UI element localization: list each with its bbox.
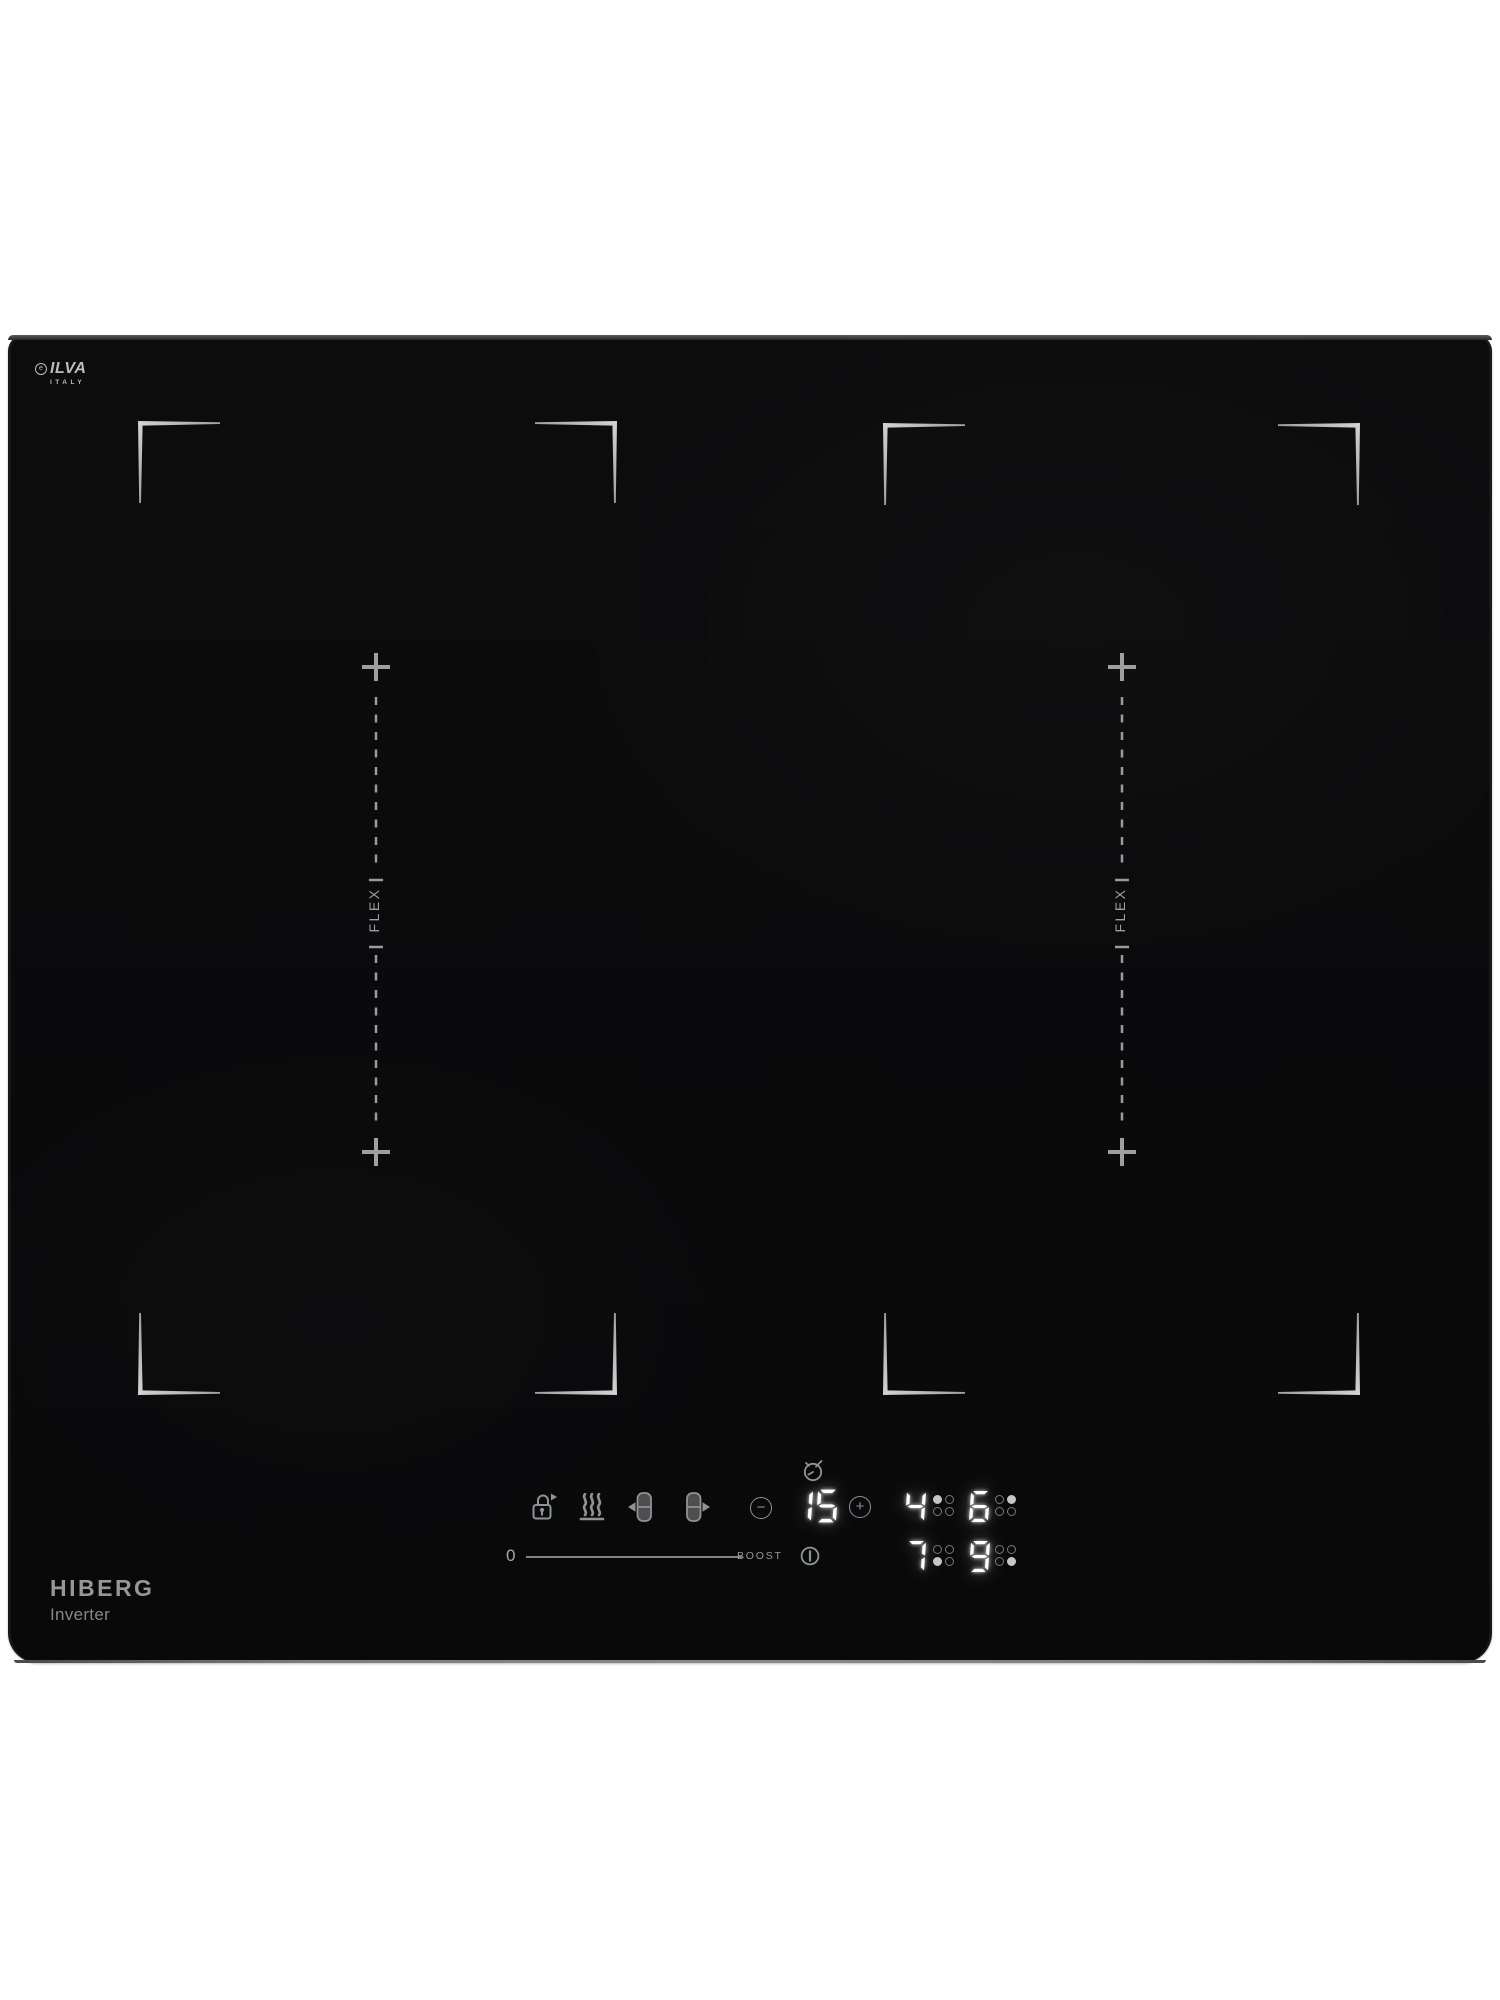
timer-minus-button[interactable]: − xyxy=(750,1497,772,1519)
burner-display-front-right[interactable] xyxy=(969,1540,990,1573)
zone-markings xyxy=(8,335,1492,1663)
power-icon[interactable] xyxy=(799,1545,821,1567)
keep-warm-icon[interactable] xyxy=(577,1493,607,1521)
ilva-logo-text: ILVA xyxy=(50,360,86,378)
burner-position-dots-rear-right xyxy=(995,1495,1016,1516)
flex-bridge-left-icon[interactable] xyxy=(626,1490,656,1524)
flex-label-left: FLEX xyxy=(366,887,382,932)
timer-clock-icon xyxy=(801,1458,825,1482)
power-slider[interactable] xyxy=(526,1556,742,1558)
product-photo: FLEX FLEX e ILVA ITALY HIBERG Inverter xyxy=(0,0,1500,2000)
burner-display-front-left[interactable] xyxy=(905,1540,926,1573)
ilva-logo: e ILVA ITALY xyxy=(35,360,86,386)
flex-bridge-right-icon[interactable] xyxy=(682,1490,712,1524)
ilva-logo-country: ITALY xyxy=(50,379,86,386)
burner-position-dots-front-left xyxy=(933,1545,954,1566)
ilva-logo-mark: e xyxy=(35,363,47,375)
hiberg-tagline: Inverter xyxy=(50,1605,154,1625)
lock-icon[interactable] xyxy=(529,1491,559,1523)
slider-min-label: 0 xyxy=(506,1546,515,1566)
cooktop-glass-panel: FLEX FLEX e ILVA ITALY HIBERG Inverter xyxy=(8,335,1492,1663)
burner-position-dots-rear-left xyxy=(933,1495,954,1516)
burner-position-dots-front-right xyxy=(995,1545,1016,1566)
burner-display-rear-left[interactable] xyxy=(905,1490,926,1523)
burner-display-rear-right[interactable] xyxy=(969,1490,990,1523)
hiberg-logo-text: HIBERG xyxy=(50,1575,154,1602)
timer-display xyxy=(791,1487,839,1525)
slider-max-label: BOOST xyxy=(737,1550,783,1562)
flex-label-right: FLEX xyxy=(1112,887,1128,932)
hiberg-logo: HIBERG Inverter xyxy=(50,1575,154,1625)
timer-plus-button[interactable]: + xyxy=(849,1496,871,1518)
